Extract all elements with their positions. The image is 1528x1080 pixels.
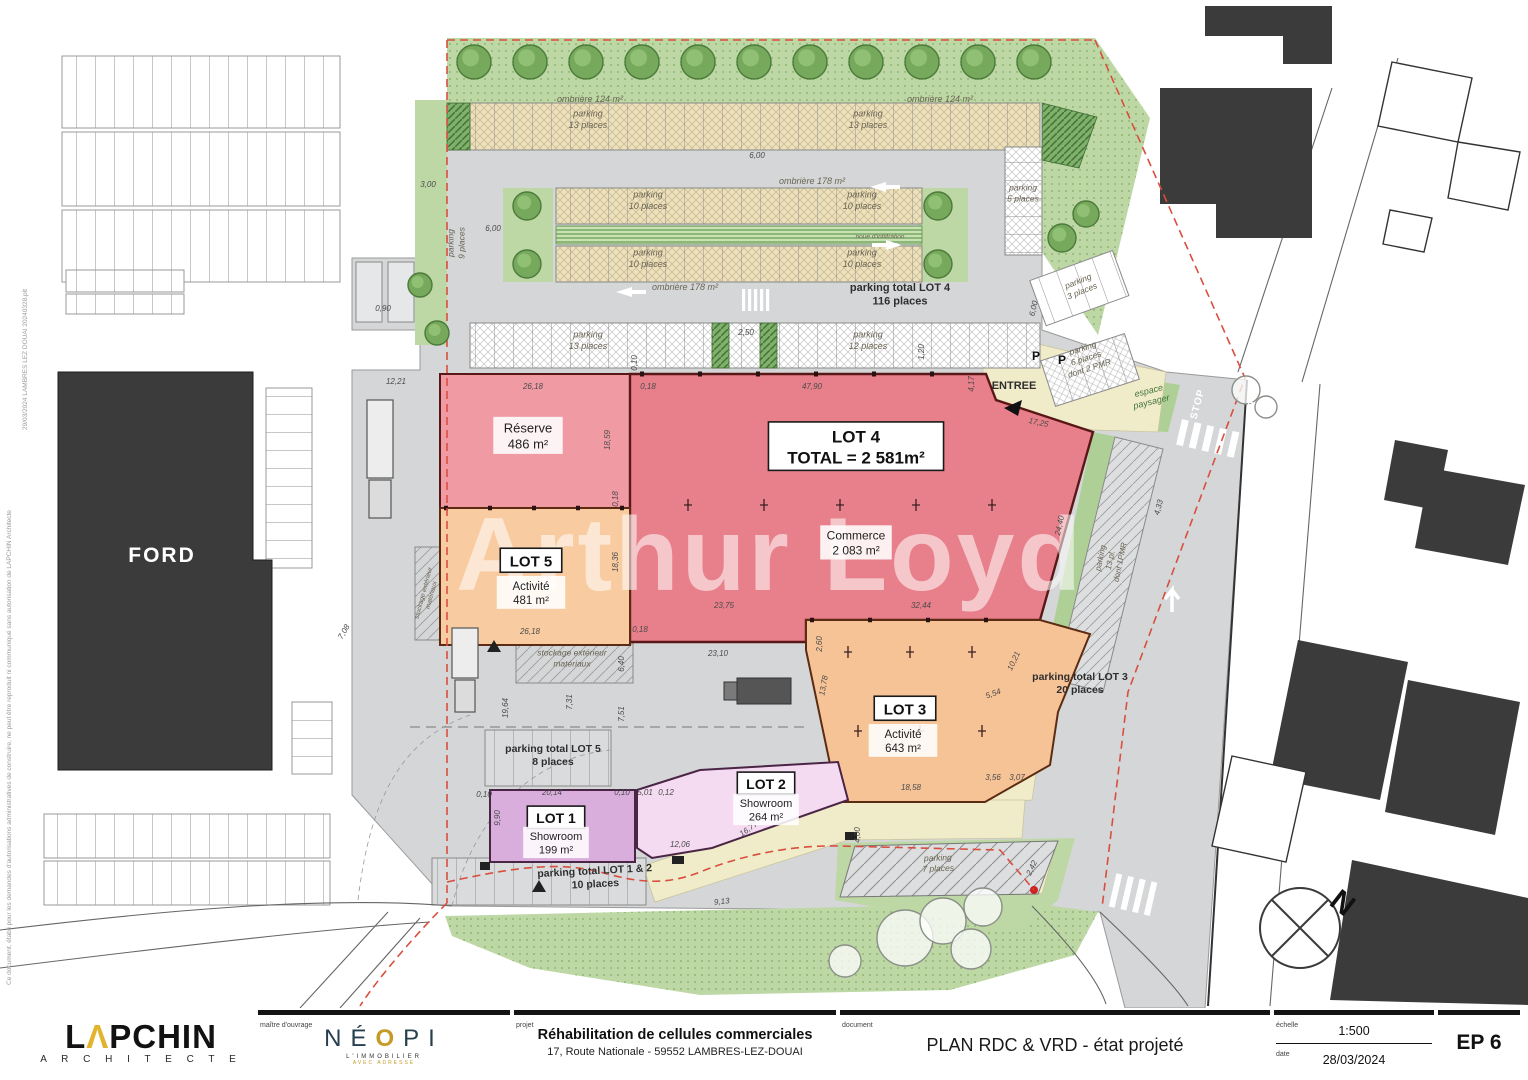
tree-icon — [425, 321, 449, 345]
lot3-activite-label: Activité643 m² — [869, 724, 938, 757]
date-value: 28/03/2024 — [1274, 1044, 1434, 1067]
dimension-label: 7,08 — [336, 622, 352, 640]
scale-label: échelle — [1276, 1022, 1298, 1029]
sheet-number: EP 6 — [1438, 1031, 1520, 1055]
tree-icon — [924, 192, 952, 220]
svg-text:parking13 places: parking13 places — [569, 330, 608, 351]
parking-13-row-label: parking13 places — [569, 330, 608, 351]
project-title: Réhabilitation de cellules commerciales — [514, 1027, 836, 1043]
tree-icon — [793, 45, 827, 79]
dimension-label: 7,51 — [617, 706, 626, 722]
dimension-label: 9,90 — [493, 810, 502, 826]
date-label: date — [1276, 1051, 1290, 1058]
lot1-showroom-label: Showroom199 m² — [523, 827, 589, 858]
dimension-label: 1,20 — [917, 344, 926, 360]
dimension-label: 47,90 — [802, 382, 823, 391]
dimension-label: 2,60 — [815, 636, 824, 653]
dimension-label: 12,21 — [386, 377, 406, 386]
svg-text:parking5 places: parking5 places — [1007, 183, 1039, 204]
tree-icon — [961, 45, 995, 79]
parking-10-nw-label: parking10 places — [629, 190, 668, 211]
dimension-label: 18,36 — [611, 551, 620, 572]
dimension-label: 6,40 — [617, 656, 626, 672]
architect-logo-accent: Λ — [86, 1018, 109, 1055]
client-cell: maître d'ouvrage NÉOPI L'IMMOBILIER AVEC… — [258, 1010, 510, 1076]
lot2-title-label: LOT 2 — [737, 772, 794, 794]
dimension-label: 0,12 — [658, 788, 674, 797]
scale-date-cell: échelle 1:500 date 28/03/2024 — [1274, 1010, 1434, 1076]
svg-text:ombrière 124 m²: ombrière 124 m² — [907, 94, 974, 104]
parking-12-places-label: parking12 places — [849, 330, 888, 351]
svg-text:LOT 2: LOT 2 — [746, 776, 786, 792]
tree-icon — [1048, 224, 1076, 252]
forklift-icon — [724, 678, 791, 704]
parking-13-top-left-label: parking13 places — [569, 109, 608, 130]
svg-text:LOT 5: LOT 5 — [510, 553, 553, 570]
project-address: 17, Route Nationale - 59552 LAMBRES-LEZ-… — [514, 1046, 836, 1058]
dimension-label: 12,06 — [670, 840, 691, 849]
document-label: document — [842, 1022, 873, 1029]
plot-file-note: 29/03/2024 LAMBRES LEZ DOUAI 20240328.pl… — [22, 289, 29, 430]
tree-icon — [681, 45, 715, 79]
parking-9-places-label: parking9 places — [446, 226, 467, 258]
svg-text:parking10 places: parking10 places — [843, 190, 882, 211]
project-label: projet — [516, 1022, 534, 1029]
utility-stall — [356, 262, 382, 322]
dimension-label: 0,18 — [640, 382, 656, 391]
svg-text:ENTREE: ENTREE — [992, 380, 1037, 392]
project-cell: projet Réhabilitation de cellules commer… — [514, 1010, 836, 1076]
bollard-icon — [480, 862, 490, 870]
dimension-label: 20,14 — [541, 788, 563, 797]
parking-10-se-label: parking10 places — [843, 248, 882, 269]
truck-icon — [452, 628, 478, 712]
dimension-label: 18,58 — [901, 783, 922, 792]
svg-text:ombrière 178 m²: ombrière 178 m² — [779, 176, 846, 186]
svg-text:noue d'infiltration: noue d'infiltration — [856, 233, 905, 240]
ombriere-178-lower-label: ombrière 178 m² — [652, 282, 719, 292]
dimension-label: 4,00 — [853, 827, 862, 843]
parking-10-ne-label: parking10 places — [843, 190, 882, 211]
noue-infiltration-label: noue d'infiltration — [856, 233, 905, 240]
dimension-label: 0,10 — [630, 355, 639, 371]
dimension-label: 2,50 — [737, 328, 754, 337]
svg-text:parking9 places: parking9 places — [446, 226, 467, 258]
dimension-label: 23,10 — [707, 649, 729, 658]
dimension-label: 19,64 — [501, 697, 510, 718]
lot4-commerce-label: Commerce2 083 m² — [820, 525, 892, 559]
dimension-label: 6,00 — [485, 224, 501, 233]
entree-label: ENTREE — [992, 380, 1037, 392]
tree-icon — [1017, 45, 1051, 79]
site-plan-sheet: FORD P P Arthur Loyd — [0, 0, 1528, 1080]
parking-7-places-label: parking7 places — [922, 852, 955, 874]
parking-5-places-label: parking5 places — [1007, 183, 1039, 204]
client-logo: NÉOPI — [258, 1025, 510, 1053]
tree-icon — [513, 192, 541, 220]
dimension-label: 0,10 — [476, 790, 492, 799]
dimension-label: 0,18 — [632, 625, 648, 634]
svg-text:Commerce2 083 m²: Commerce2 083 m² — [827, 529, 886, 558]
title-block: LΛPCHIN A R C H I T E C T E maître d'ouv… — [0, 1008, 1528, 1080]
parking-10-sw-label: parking10 places — [629, 248, 668, 269]
tree-icon — [625, 45, 659, 79]
lot3-title-label: LOT 3 — [874, 696, 936, 720]
ford-label: FORD — [128, 544, 196, 567]
ombriere-left-label: ombrière 124 m² — [557, 94, 624, 104]
lot1-title-label: LOT 1 — [527, 806, 584, 828]
svg-text:parking10 places: parking10 places — [843, 248, 882, 269]
parking-sign-icon: P — [1032, 349, 1040, 363]
tree-icon — [569, 45, 603, 79]
svg-text:parking10 places: parking10 places — [629, 190, 668, 211]
tree-icon — [849, 45, 883, 79]
dimension-label: 0,90 — [375, 304, 391, 313]
dimension-label: 26,18 — [522, 382, 544, 391]
bollard-icon — [672, 856, 684, 864]
svg-text:parking7 places: parking7 places — [922, 852, 955, 874]
architect-logo-sub: A R C H I T E C T E — [36, 1054, 246, 1065]
lot2-showroom-label: Showroom264 m² — [733, 794, 799, 825]
reserve-label: Réserve486 m² — [493, 417, 562, 454]
ombriere-right-label: ombrière 124 m² — [907, 94, 974, 104]
dimension-label: 3,56 — [985, 773, 1001, 782]
dimension-label: 18,59 — [603, 429, 612, 450]
svg-text:ombrière 124 m²: ombrière 124 m² — [557, 94, 624, 104]
ford-building: FORD — [58, 372, 272, 770]
dimension-label: 4,17 — [967, 376, 976, 392]
dimension-label: 9,13 — [714, 896, 731, 907]
parking-13-top-right-label: parking13 places — [849, 109, 888, 130]
parking-sign-icon: P — [1058, 353, 1066, 367]
svg-text:LOT 3: LOT 3 — [884, 701, 927, 718]
dimension-label: 23,75 — [713, 601, 735, 610]
tree-icon — [1073, 201, 1099, 227]
site-plan-drawing: FORD P P Arthur Loyd — [0, 0, 1528, 1080]
client-label: maître d'ouvrage — [260, 1022, 312, 1029]
copyright-note: Ce document, établi pour les demandes d'… — [6, 510, 13, 985]
dimension-label: 26,18 — [519, 627, 541, 636]
svg-text:Réserve486 m²: Réserve486 m² — [504, 420, 552, 451]
lot5-activite-label: Activité481 m² — [497, 576, 566, 609]
lot5-title-label: LOT 5 — [500, 548, 562, 572]
svg-text:parking10 places: parking10 places — [629, 248, 668, 269]
svg-text:parking13 places: parking13 places — [569, 109, 608, 130]
svg-text:LOT 1: LOT 1 — [536, 810, 576, 826]
svg-text:ombrière 178 m²: ombrière 178 m² — [652, 282, 719, 292]
dimension-label: 32,44 — [911, 601, 932, 610]
svg-text:parking12 places: parking12 places — [849, 330, 888, 351]
dimension-label: 0,10 — [614, 788, 630, 797]
tree-outline-icon — [951, 929, 991, 969]
truck-icon — [367, 400, 393, 518]
document-title: PLAN RDC & VRD - état projeté — [840, 1035, 1270, 1056]
tree-icon — [513, 250, 541, 278]
tree-icon — [513, 45, 547, 79]
tree-outline-icon — [829, 945, 861, 977]
tree-icon — [737, 45, 771, 79]
tree-icon — [457, 45, 491, 79]
lot4-title-label: LOT 4TOTAL = 2 581m² — [768, 422, 943, 470]
tree-icon — [924, 250, 952, 278]
document-cell: document PLAN RDC & VRD - état projeté — [840, 1010, 1270, 1076]
dimension-label: 6,00 — [749, 151, 765, 160]
dimension-label: 5,01 — [637, 788, 653, 797]
dimension-label: 3,07 — [1009, 773, 1025, 782]
dimension-label: 3,00 — [420, 180, 436, 189]
architect-logo-text: L — [65, 1018, 86, 1055]
svg-text:parking13 places: parking13 places — [849, 109, 888, 130]
tree-icon — [408, 273, 432, 297]
tree-icon — [905, 45, 939, 79]
architect-logo: LΛPCHIN A R C H I T E C T E — [36, 1022, 246, 1065]
ombriere-178-upper-label: ombrière 178 m² — [779, 176, 846, 186]
dimension-label: 0,18 — [611, 491, 620, 507]
dimension-label: 7,31 — [565, 694, 574, 710]
client-logo-sub2: AVEC ADRESSE — [258, 1060, 510, 1066]
tree-outline-icon — [964, 888, 1002, 926]
sheet-cell: EP 6 — [1438, 1010, 1520, 1076]
